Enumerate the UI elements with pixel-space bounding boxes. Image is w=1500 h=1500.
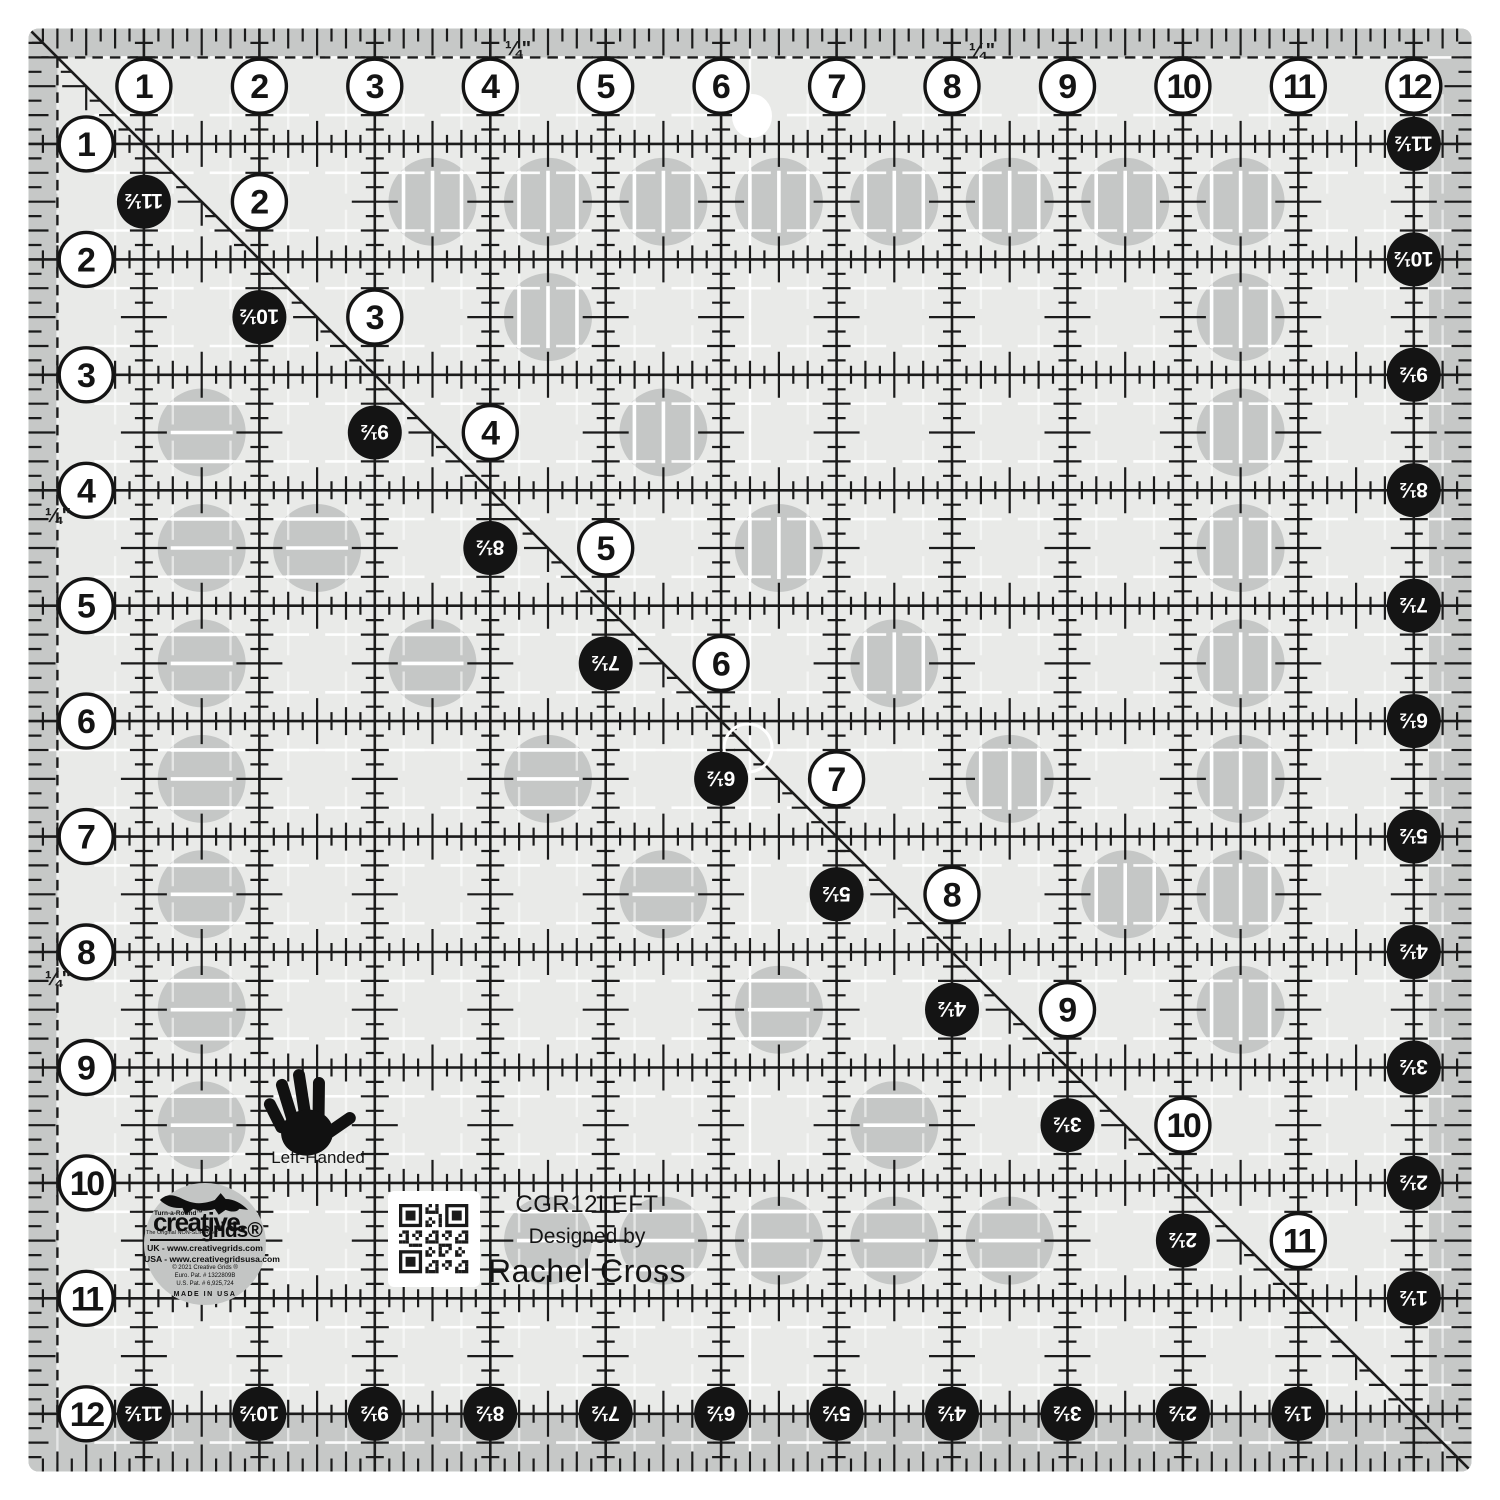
diagonal-white-number-2-text: 2 — [250, 184, 268, 222]
bottom-number-2½: 2½ — [1156, 1387, 1210, 1441]
top-number-5-text: 5 — [596, 68, 614, 106]
left-number-2: 2 — [59, 232, 113, 286]
top-number-6: 6 — [694, 59, 748, 113]
logo-copyright: © 2021 Creative Grids ® — [144, 1265, 266, 1271]
bottom-number-9½-text: 9½ — [361, 1401, 389, 1424]
diagonal-white-number-7: 7 — [810, 752, 864, 806]
bottom-number-5½: 5½ — [810, 1387, 864, 1441]
diagonal-black-number-8½-text: 8½ — [476, 536, 504, 559]
sku-text: CGR12LEFT — [462, 1193, 712, 1217]
diagonal-black-number-7½-text: 7½ — [592, 651, 620, 674]
quarter-inch-label-top-1: ¼" — [496, 38, 540, 61]
right-number-5½: 5½ — [1387, 810, 1441, 864]
top-number-8-text: 8 — [943, 68, 961, 106]
diagonal-black-number-11½-text: 11½ — [125, 189, 163, 212]
diagonal-white-number-5-text: 5 — [596, 530, 614, 568]
diagonal-black-number-2½-text: 2½ — [1169, 1228, 1197, 1251]
top-number-3: 3 — [348, 59, 402, 113]
top-number-1-text: 1 — [135, 68, 153, 106]
diagonal-white-number-11: 11 — [1271, 1214, 1325, 1268]
right-number-2½: 2½ — [1387, 1156, 1441, 1210]
right-number-11½: 11½ — [1387, 117, 1441, 171]
logo-uk-url: UK - www.creativegrids.com — [144, 1243, 266, 1253]
diagonal-black-number-9½: 9½ — [348, 406, 402, 460]
top-number-6-text: 6 — [712, 68, 730, 106]
right-number-11½-text: 11½ — [1395, 131, 1433, 154]
right-number-10½-text: 10½ — [1394, 247, 1433, 270]
diagonal-black-number-9½-text: 9½ — [361, 420, 389, 443]
creative-grids-logo: Turn-a-Round™ creative. grids® The Origi… — [144, 1183, 266, 1305]
diagonal-white-number-7-text: 7 — [827, 761, 845, 799]
diagonal-white-number-5: 5 — [579, 521, 633, 575]
right-number-6½-text: 6½ — [1400, 709, 1428, 732]
diagonal-black-number-6½-text: 6½ — [707, 766, 735, 789]
left-number-2-text: 2 — [77, 241, 95, 279]
left-number-1-text: 1 — [77, 126, 95, 164]
left-number-5-text: 5 — [77, 588, 95, 626]
left-number-10: 10 — [59, 1156, 113, 1210]
right-number-8½: 8½ — [1387, 463, 1441, 517]
logo-us-patent: U.S. Pat. # 6,925,724 — [144, 1281, 266, 1287]
top-number-10-text: 10 — [1166, 68, 1200, 106]
bottom-number-9½: 9½ — [348, 1387, 402, 1441]
diagonal-black-number-10½-text: 10½ — [240, 305, 279, 328]
diagonal-black-number-6½: 6½ — [694, 752, 748, 806]
sku-designer-block: CGR12LEFT Designed by Rachel Cross — [462, 1193, 712, 1287]
top-number-1: 1 — [117, 59, 171, 113]
right-number-4½: 4½ — [1387, 925, 1441, 979]
left-number-5: 5 — [59, 579, 113, 633]
right-number-9½: 9½ — [1387, 348, 1441, 402]
logo-usa-url: USA - www.creativegridsusa.com — [144, 1254, 266, 1264]
top-number-4: 4 — [463, 59, 517, 113]
quarter-inch-label-left-2: ¼" — [36, 968, 80, 991]
right-number-9½-text: 9½ — [1400, 362, 1428, 385]
diagonal-black-number-3½: 3½ — [1041, 1098, 1095, 1152]
left-number-12: 12 — [59, 1387, 113, 1441]
diagonal-black-number-3½-text: 3½ — [1053, 1113, 1081, 1136]
diagonal-white-number-10: 10 — [1156, 1098, 1210, 1152]
bottom-number-8½-text: 8½ — [476, 1401, 504, 1424]
right-number-7½-text: 7½ — [1400, 593, 1428, 616]
bottom-number-5½-text: 5½ — [822, 1401, 850, 1424]
left-number-3-text: 3 — [77, 357, 95, 395]
logo-divider — [150, 1239, 260, 1241]
diagonal-black-number-5½-text: 5½ — [822, 882, 850, 905]
diagonal-white-number-3-text: 3 — [366, 299, 384, 337]
diagonal-black-number-4½-text: 4½ — [938, 997, 966, 1020]
right-number-5½-text: 5½ — [1400, 824, 1428, 847]
top-number-2: 2 — [232, 59, 286, 113]
designer-name: Rachel Cross — [462, 1255, 712, 1287]
right-number-6½: 6½ — [1387, 694, 1441, 748]
right-number-3½-text: 3½ — [1400, 1055, 1428, 1078]
diagonal-white-number-9-text: 9 — [1058, 992, 1076, 1030]
right-number-3½: 3½ — [1387, 1041, 1441, 1095]
diagonal-black-number-8½: 8½ — [463, 521, 517, 575]
bottom-number-11½-text: 11½ — [125, 1401, 163, 1424]
diagonal-white-number-6-text: 6 — [712, 645, 730, 683]
quarter-inch-label-left-1: ¼" — [36, 505, 80, 528]
diagonal-white-number-3: 3 — [348, 290, 402, 344]
left-number-11-text: 11 — [71, 1280, 104, 1318]
left-number-7-text: 7 — [77, 819, 95, 857]
diagonal-white-number-8-text: 8 — [943, 876, 961, 914]
left-number-9: 9 — [59, 1041, 113, 1095]
diagonal-white-number-4-text: 4 — [481, 415, 500, 453]
diagonal-white-number-10-text: 10 — [1166, 1107, 1200, 1145]
top-number-3-text: 3 — [366, 68, 384, 106]
diagonal-black-number-2½: 2½ — [1156, 1214, 1210, 1268]
left-number-10-text: 10 — [70, 1165, 104, 1203]
quarter-inch-label-top-2: ¼" — [960, 40, 1004, 63]
logo-made-in-usa: MADE IN USA — [144, 1291, 266, 1298]
bottom-number-6½: 6½ — [694, 1387, 748, 1441]
right-number-8½-text: 8½ — [1400, 478, 1428, 501]
diagonal-white-number-9: 9 — [1041, 983, 1095, 1037]
right-number-7½: 7½ — [1387, 579, 1441, 633]
diagonal-white-number-2: 2 — [232, 175, 286, 229]
right-number-1½-text: 1½ — [1400, 1286, 1428, 1309]
diagonal-black-number-5½: 5½ — [810, 867, 864, 921]
left-number-12-text: 12 — [70, 1396, 104, 1434]
left-number-7: 7 — [59, 810, 113, 864]
left-number-6-text: 6 — [77, 703, 95, 741]
left-number-3: 3 — [59, 348, 113, 402]
top-number-2-text: 2 — [250, 68, 268, 106]
designed-by-label: Designed by — [462, 1226, 712, 1247]
diagonal-black-number-10½: 10½ — [232, 290, 286, 344]
top-number-5: 5 — [579, 59, 633, 113]
left-handed-label: Left-Handed — [233, 1148, 403, 1168]
bottom-number-3½: 3½ — [1041, 1387, 1095, 1441]
top-number-7: 7 — [810, 59, 864, 113]
bottom-number-6½-text: 6½ — [707, 1401, 735, 1424]
bottom-number-1½-text: 1½ — [1284, 1401, 1312, 1424]
top-number-7-text: 7 — [827, 68, 845, 106]
left-number-9-text: 9 — [77, 1050, 95, 1088]
bottom-number-4½-text: 4½ — [938, 1401, 966, 1424]
diagonal-black-number-7½: 7½ — [579, 636, 633, 690]
top-number-12: 12 — [1387, 59, 1441, 113]
quilting-ruler-product-image: 12345678910111212345678910111211½10½9½8½… — [0, 0, 1500, 1500]
top-number-12-text: 12 — [1397, 68, 1431, 106]
top-number-11-text: 11 — [1283, 68, 1316, 106]
logo-tagline: The Original NON-SLIP Ruler — [146, 1230, 218, 1236]
bottom-number-7½: 7½ — [579, 1387, 633, 1441]
top-number-11: 11 — [1271, 59, 1325, 113]
bottom-number-4½: 4½ — [925, 1387, 979, 1441]
diagonal-white-number-11-text: 11 — [1283, 1223, 1316, 1261]
right-number-10½: 10½ — [1387, 232, 1441, 286]
left-number-11: 11 — [59, 1271, 113, 1325]
bottom-number-11½: 11½ — [117, 1387, 171, 1441]
bottom-number-7½-text: 7½ — [592, 1401, 620, 1424]
top-number-9-text: 9 — [1058, 68, 1076, 106]
logo-euro-patent: Euro. Pat. # 1322809B — [144, 1273, 266, 1279]
bottom-number-1½: 1½ — [1271, 1387, 1325, 1441]
bottom-number-10½-text: 10½ — [240, 1401, 279, 1424]
top-number-10: 10 — [1156, 59, 1210, 113]
diagonal-black-number-11½: 11½ — [117, 175, 171, 229]
diagonal-white-number-4: 4 — [463, 406, 517, 460]
bottom-number-2½-text: 2½ — [1169, 1401, 1197, 1424]
right-number-2½-text: 2½ — [1400, 1170, 1428, 1193]
left-number-8-text: 8 — [77, 934, 95, 972]
left-hand-icon — [262, 1062, 372, 1162]
top-number-8: 8 — [925, 59, 979, 113]
diagonal-white-number-6: 6 — [694, 636, 748, 690]
bottom-number-10½: 10½ — [232, 1387, 286, 1441]
right-number-4½-text: 4½ — [1400, 940, 1428, 963]
top-number-4-text: 4 — [481, 68, 500, 106]
diagonal-white-number-8: 8 — [925, 867, 979, 921]
bottom-number-3½-text: 3½ — [1053, 1401, 1081, 1424]
right-number-1½: 1½ — [1387, 1271, 1441, 1325]
left-number-6: 6 — [59, 694, 113, 748]
top-number-9: 9 — [1041, 59, 1095, 113]
diagonal-black-number-4½: 4½ — [925, 983, 979, 1037]
bottom-number-8½: 8½ — [463, 1387, 517, 1441]
left-number-1: 1 — [59, 117, 113, 171]
